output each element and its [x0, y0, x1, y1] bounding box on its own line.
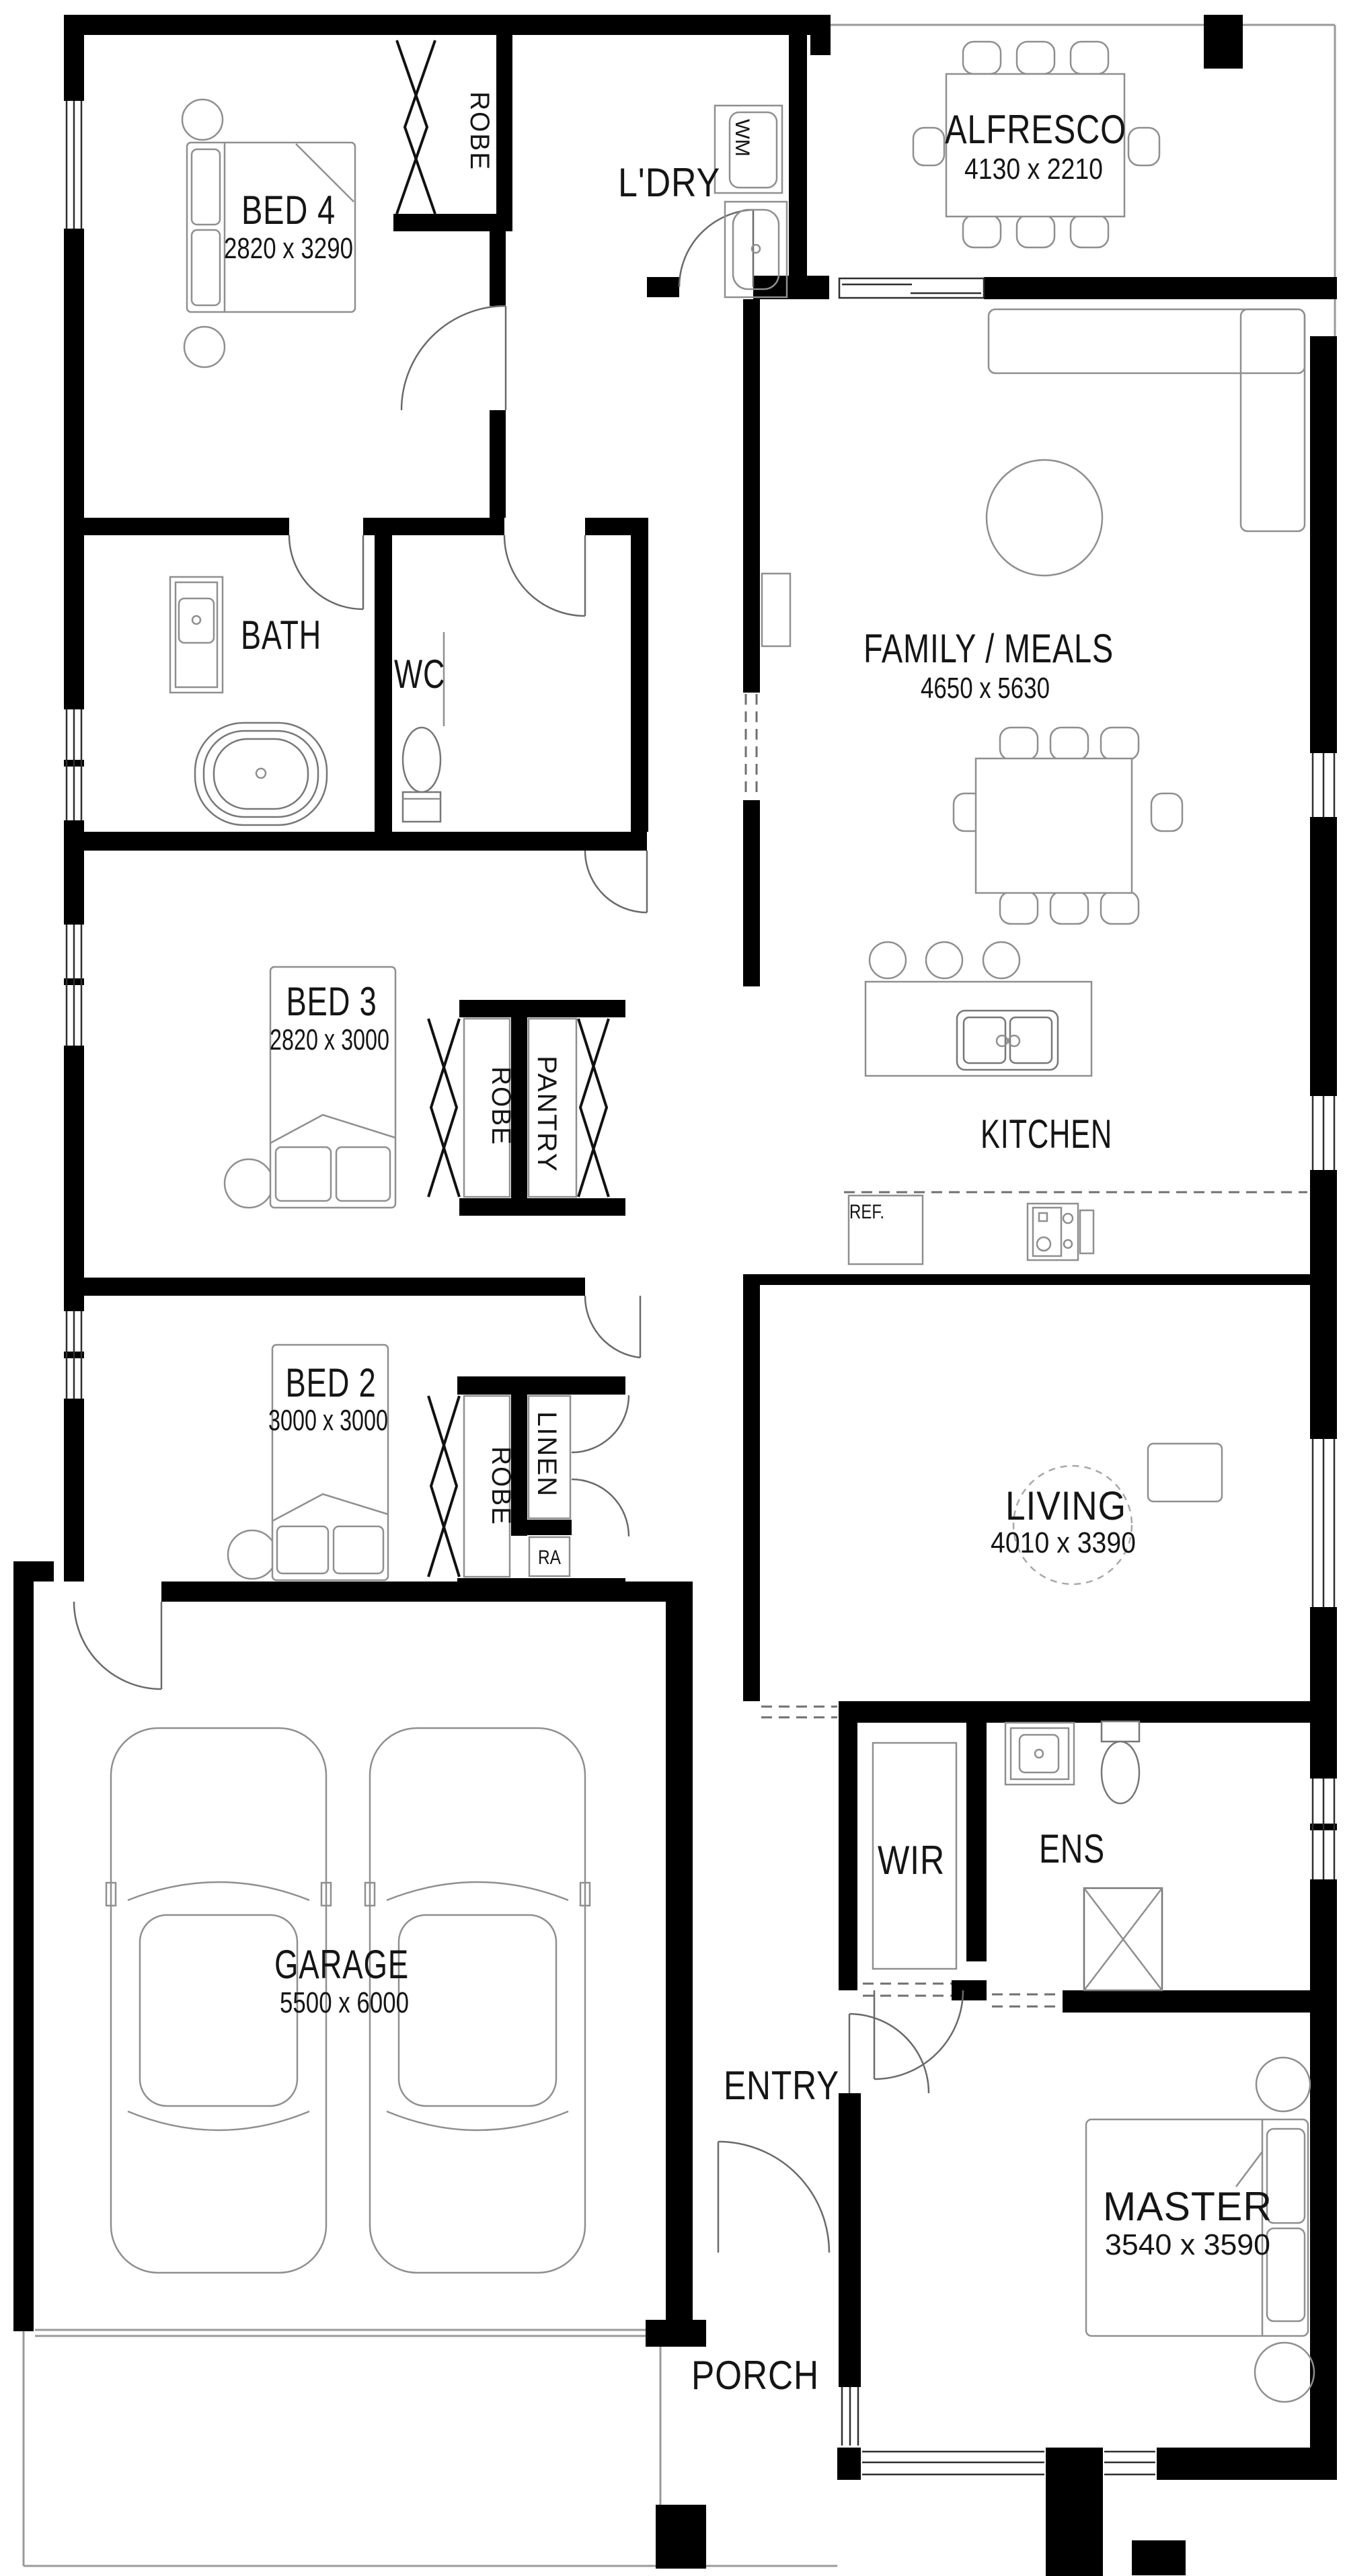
- room-label-alfresco: ALFRESCO 4130 x 2210: [945, 107, 1126, 186]
- floor-plan: BED 4 2820 x 3290 L'DRY ALFRESCO 4130 x …: [0, 0, 1345, 2576]
- porch-label: PORCH: [691, 2353, 819, 2398]
- door-master: [849, 2014, 929, 2093]
- bed4-label: BED 4: [241, 188, 336, 233]
- bed2-label: BED 2: [286, 1360, 377, 1405]
- master-label: MASTER: [1103, 2184, 1272, 2229]
- doors: [74, 210, 963, 2253]
- window-family-right: [1313, 753, 1334, 817]
- linen-label: LINEN: [532, 1411, 562, 1497]
- room-label-ens: ENS: [1039, 1826, 1105, 1871]
- door-bed3: [585, 851, 647, 912]
- door-linen: [572, 1395, 629, 1536]
- bifold-pantry: [578, 1019, 609, 1197]
- stacker-door-alfresco: [839, 278, 984, 298]
- room-label-bed4: BED 4 2820 x 3290: [224, 188, 353, 265]
- door-bed2: [585, 1296, 640, 1358]
- robe-bed2-label: ROBE: [486, 1446, 516, 1526]
- bifold-robe-bed4: [397, 40, 435, 214]
- room-label-porch: PORCH: [691, 2353, 819, 2398]
- window-master-bottom: [862, 2452, 1155, 2474]
- bed4-dims: 2820 x 3290: [224, 232, 353, 265]
- door-wir: [874, 1990, 963, 2079]
- window-bed4-left: [67, 101, 81, 229]
- window-porch-entry: [842, 2387, 858, 2446]
- door-bath: [289, 535, 363, 609]
- ldry-label: L'DRY: [618, 160, 720, 205]
- pantry-label: PANTRY: [532, 1056, 562, 1173]
- ra-label: RA: [538, 1547, 561, 1569]
- garage-dims: 5500 x 6000: [280, 1986, 409, 2019]
- door-bed4: [401, 306, 506, 410]
- master-dims: 3540 x 3590: [1105, 2228, 1270, 2261]
- ref-label: REF.: [849, 1201, 884, 1223]
- wm-label: WM: [731, 119, 753, 157]
- room-label-family: FAMILY / MEALS 4650 x 5630: [863, 626, 1114, 705]
- family-label: FAMILY / MEALS: [863, 626, 1114, 671]
- entry-label: ENTRY: [724, 2063, 839, 2108]
- room-label-garage: GARAGE 5500 x 6000: [274, 1942, 409, 2019]
- living-label: LIVING: [1005, 1483, 1126, 1528]
- bed3-dims: 2820 x 3000: [270, 1023, 389, 1056]
- door-laundry: [679, 210, 753, 287]
- alfresco-label: ALFRESCO: [945, 107, 1126, 152]
- garage-label: GARAGE: [274, 1942, 409, 1987]
- room-label-bed3: BED 3 2820 x 3000: [270, 979, 389, 1056]
- closet-shelving: [464, 574, 956, 1969]
- window-living-right: [1313, 1439, 1334, 1607]
- bifold-robe-bed3: [428, 1019, 459, 1197]
- ens-label: ENS: [1039, 1826, 1105, 1871]
- kitchen-label: KITCHEN: [981, 1111, 1112, 1157]
- robe-bed4-label: ROBE: [465, 91, 494, 171]
- wc-label: WC: [394, 652, 445, 697]
- living-dims: 4010 x 3390: [991, 1526, 1136, 1559]
- door-entry-front: [718, 2142, 829, 2253]
- door-wc: [504, 535, 585, 616]
- room-label-bed2: BED 2 3000 x 3000: [268, 1360, 388, 1437]
- room-label-bath: BATH: [241, 613, 321, 658]
- room-label-entry: ENTRY: [724, 2063, 839, 2108]
- room-label-master: MASTER 3540 x 3590: [1103, 2184, 1272, 2261]
- room-label-wir: WIR: [878, 1838, 945, 1883]
- bifold-robe-bed2: [428, 1396, 459, 1577]
- door-garage-internal: [74, 1602, 161, 1689]
- alfresco-dims: 4130 x 2210: [964, 153, 1103, 186]
- bed3-label: BED 3: [286, 979, 377, 1024]
- robe-bed3-label: ROBE: [486, 1066, 516, 1146]
- window-kitchen-right: [1313, 1096, 1334, 1170]
- room-label-kitchen: KITCHEN: [981, 1111, 1112, 1157]
- family-dims: 4650 x 5630: [921, 672, 1050, 705]
- room-label-living: LIVING 4010 x 3390: [991, 1483, 1136, 1559]
- kitchen-fixtures: [849, 942, 1093, 1264]
- bath-label: BATH: [241, 613, 321, 658]
- family-meals-furniture: [954, 309, 1305, 924]
- room-label-wc: WC: [394, 652, 445, 697]
- room-label-ldry: L'DRY: [618, 160, 720, 205]
- bed2-dims: 3000 x 3000: [268, 1404, 388, 1437]
- wir-label: WIR: [878, 1838, 945, 1883]
